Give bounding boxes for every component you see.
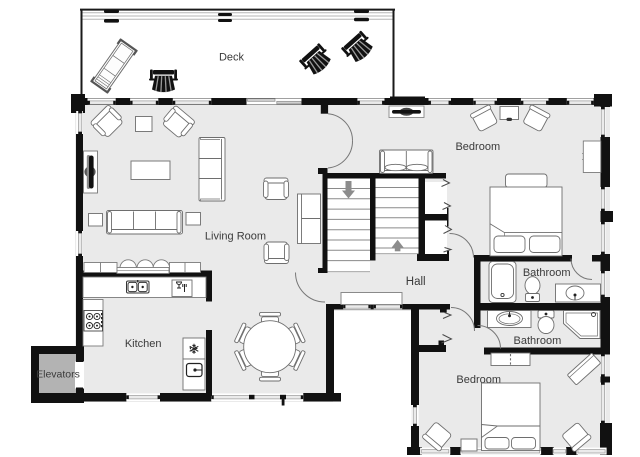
svg-text:Bedroom: Bedroom <box>455 141 500 153</box>
svg-text:Bathroom: Bathroom <box>514 335 562 347</box>
svg-text:Elevators: Elevators <box>36 369 80 381</box>
svg-text:Living Room: Living Room <box>205 230 266 242</box>
svg-text:Kitchen: Kitchen <box>125 338 162 350</box>
svg-text:Hall: Hall <box>406 276 426 288</box>
svg-text:Bathroom: Bathroom <box>523 267 571 279</box>
svg-text:Deck: Deck <box>219 52 245 64</box>
